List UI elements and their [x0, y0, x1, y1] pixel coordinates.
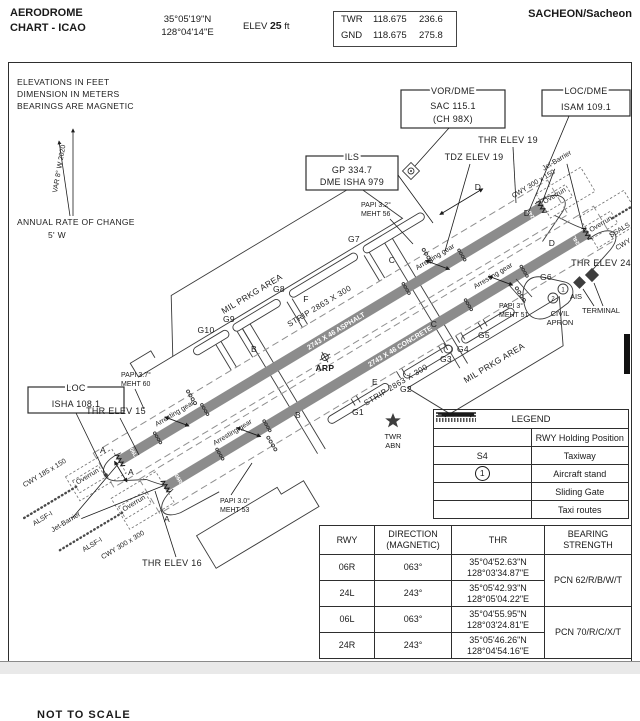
variation-label: VAR 8° W 2020 — [51, 144, 67, 193]
taxiway-g2-label: G2 — [400, 384, 412, 394]
airport-lon: 128°04'14"E — [140, 26, 235, 39]
rwy-24r: 24R — [320, 633, 375, 659]
legend-holding-label: RWY Holding Position — [531, 429, 629, 447]
jet-barrier-label-west: Jet-Barrier — [50, 511, 82, 534]
legend-gate-label: Sliding Gate — [531, 483, 629, 501]
gnd-freq-2: 275.8 — [419, 28, 443, 44]
rwy-06r: 06R — [320, 555, 375, 581]
aerodrome-chart-page: { "header": { "title1": "AERODROME", "ti… — [0, 0, 640, 673]
chart-title-line1: AERODROME — [10, 6, 86, 21]
ils-gp: GP 334.7 — [332, 165, 372, 175]
frequency-box: TWR 118.675 236.6 GND 118.675 275.8 — [333, 11, 457, 47]
civil-apron-label-1: CIVIL — [551, 309, 570, 318]
rwy-holding-position-icon — [434, 429, 532, 447]
elev-label: ELEV — [243, 21, 267, 32]
chart-title-line2: CHART - ICAO — [10, 21, 86, 36]
taxiway-d-label-2: D — [524, 208, 530, 218]
annual-rate-label: ANNUAL RATE OF CHANGE — [17, 217, 135, 227]
legend-row-taxiway: S4 Taxiway — [434, 447, 629, 465]
scrollbar-thumb[interactable] — [624, 334, 630, 374]
col-thr: THR — [452, 526, 545, 555]
thr-24r: 35°05'46.26"N128°04'54.16"E — [452, 633, 545, 659]
thr-elev-19-label: THR ELEV 19 — [478, 135, 538, 145]
vor-dme-title: VOR/DME — [431, 86, 475, 96]
loc-dme-ident: ISAM 109.1 — [561, 102, 611, 112]
alsf-label-2: ALSF-I — [81, 537, 103, 554]
gnd-freq-1: 118.675 — [373, 28, 419, 44]
taxiway-g1-label: G1 — [352, 407, 364, 417]
taxiway-f-label: F — [303, 294, 309, 304]
taxiway-g8-label: G8 — [273, 284, 285, 294]
alsf-label-1: ALSF-I — [32, 510, 54, 527]
twr-freq-2: 236.6 — [419, 12, 443, 28]
taxiway-a-label-1: A — [100, 445, 106, 455]
tdz-elev-19-label: TDZ ELEV 19 — [445, 152, 504, 162]
chart-title: AERODROME CHART - ICAO — [10, 6, 86, 36]
sliding-gate-icon — [434, 483, 532, 501]
ssals-label: SSALS — [608, 222, 631, 240]
twr-frequency-row: TWR 118.675 236.6 — [334, 12, 456, 28]
papi-30-meht: MEHT 53 — [220, 507, 250, 514]
cwy-185x150-label: CWY 185 x 150 — [22, 458, 68, 489]
papi-37-label: PAPI 3.7° — [121, 371, 151, 379]
terminal-building-icon — [573, 276, 586, 289]
papi-32-label: PAPI 3.2° — [361, 201, 391, 209]
legend-taxiway-label: Taxiway — [531, 447, 629, 465]
papi-37-meht: MEHT 60 — [121, 381, 151, 388]
col-rwy: RWY — [320, 526, 375, 555]
rwy-table-header: RWY DIRECTION(MAGNETIC) THR BEARINGSTREN… — [320, 526, 632, 555]
pcn-06l-24r: PCN 70/R/C/X/T — [545, 607, 632, 659]
southwest-apron — [197, 474, 319, 568]
airport-elevation: ELEV 25 ft — [243, 20, 290, 32]
not-to-scale-note: NOT TO SCALE — [37, 709, 131, 721]
vor-dme-symbol — [403, 163, 420, 180]
terminal-label: TERMINAL — [582, 306, 620, 315]
aircraft-stand-1: 1 — [561, 288, 565, 294]
airport-lat: 35°05'19"N — [140, 13, 235, 26]
taxiway-c-label-2: C — [431, 319, 437, 329]
mil-prkg-south-label: MIL PRKG AREA — [462, 341, 527, 385]
taxi-routes-icon — [434, 501, 532, 519]
taxiway-d-label-1: D — [475, 182, 481, 192]
civil-apron-label-2: APRON — [547, 318, 574, 327]
thr-06l: 35°04'55.95"N128°03'24.81"E — [452, 607, 545, 633]
rwy-06l: 06L — [320, 607, 375, 633]
arp-marker: ARP — [308, 349, 340, 382]
note-bearings: BEARINGS ARE MAGNETIC — [17, 101, 134, 111]
twr-label: TWR — [341, 12, 373, 28]
abn-label: ABN — [385, 441, 400, 450]
rwy-row-06r: 06R 063° 35°04'52.63"N128°03'34.87"E PCN… — [320, 555, 632, 581]
cwy-300x300-label-west: CWY 300 x 300 — [100, 530, 146, 561]
thr-elev-24-label: THR ELEV 24 — [571, 258, 631, 268]
taxiway-g10-label: G10 — [198, 325, 215, 335]
papi-3-meht: MEHT 51 — [499, 312, 529, 319]
airport-name: SACHEON/Sacheon — [528, 8, 632, 20]
runway-data-table: RWY DIRECTION(MAGNETIC) THR BEARINGSTREN… — [319, 525, 632, 659]
vor-dme-freq: SAC 115.1 — [430, 101, 476, 111]
elev-unit: ft — [284, 21, 289, 32]
taxiway-d-label-3: D — [549, 238, 555, 248]
overrun-label-3: Overrun — [542, 187, 567, 206]
gnd-frequency-row: GND 118.675 275.8 — [334, 28, 456, 44]
elev-value: 25 — [270, 20, 282, 32]
col-direction: DIRECTION(MAGNETIC) — [375, 526, 452, 555]
vor-dme-channel: (CH 98X) — [433, 114, 473, 124]
thr-24l: 35°05'42.93"N128°05'04.22"E — [452, 581, 545, 607]
taxiway-g9-label: G9 — [223, 314, 235, 324]
rwy-24l: 24L — [320, 581, 375, 607]
chart-notes: ELEVATIONS IN FEET DIMENSION IN METERS B… — [17, 77, 134, 111]
taxiway-a-label-3: A — [164, 514, 170, 524]
arp-label: ARP — [315, 363, 334, 373]
thr-elev-16-label: THR ELEV 16 — [142, 558, 202, 568]
taxiway-g3-label: G3 — [440, 354, 452, 364]
taxiway-c-label-1: C — [389, 255, 395, 265]
ais-label: AIS — [570, 292, 582, 301]
papi-30-label: PAPI 3.0° — [220, 497, 250, 505]
col-bearing: BEARINGSTRENGTH — [545, 526, 632, 555]
tower-beacon: TWR ABN — [384, 413, 402, 450]
twr-freq-1: 118.675 — [373, 12, 419, 28]
thr-elev-15-label: THR ELEV 15 — [86, 406, 146, 416]
taxiway-e-label: E — [372, 377, 378, 387]
legend-row-holding: RWY Holding Position — [434, 429, 629, 447]
overrun-label-1: Overrun — [75, 467, 100, 486]
gnd-label: GND — [341, 28, 373, 44]
legend-row-gate: Sliding Gate — [434, 483, 629, 501]
legend-table: LEGEND RWY Holding Position S4 Taxiway 1… — [433, 409, 629, 519]
page-bottom-strip — [0, 661, 640, 674]
taxiway-a-label-2: A — [128, 467, 134, 477]
ais-building-icon — [585, 268, 599, 282]
taxiway-g7-label: G7 — [348, 234, 360, 244]
papi-3-label: PAPI 3° — [499, 302, 523, 310]
loc-title: LOC — [66, 383, 86, 393]
taxiway-b-label-2: B — [295, 410, 301, 420]
dir-06r: 063° — [375, 555, 452, 581]
taxiway-g5-label: G5 — [478, 330, 490, 340]
note-dimensions: DIMENSION IN METERS — [17, 89, 120, 99]
note-elevations: ELEVATIONS IN FEET — [17, 77, 109, 87]
aircraft-stand-icon: 1 — [434, 465, 532, 483]
north-arrow: VAR 8° W 2020 — [51, 129, 73, 216]
rwy-row-06l: 06L 063° 35°04'55.95"N128°03'24.81"E PCN… — [320, 607, 632, 633]
star-icon — [385, 413, 401, 427]
thr-06r: 35°04'52.63"N128°03'34.87"E — [452, 555, 545, 581]
pcn-06r-24l: PCN 62/R/B/W/T — [545, 555, 632, 607]
dir-06l: 063° — [375, 607, 452, 633]
taxiway-symbol: S4 — [434, 447, 532, 465]
loc-dme-title: LOC/DME — [564, 86, 607, 96]
runway-north-dimension-label: 2743 X 46 ASPHALT — [306, 311, 367, 351]
legend-stand-label: Aircraft stand — [531, 465, 629, 483]
taxiway-b-label-1: B — [251, 344, 257, 354]
loc-box: LOC ISHA 108.1 — [28, 383, 124, 477]
papi-32-meht: MEHT 56 — [361, 211, 391, 218]
taxiway-g4-label: G4 — [457, 344, 469, 354]
dir-24l: 243° — [375, 581, 452, 607]
ils-dme: DME ISHA 979 — [320, 177, 384, 187]
chart-frame: MIL PRKG AREA MIL PRKG AREA 2743 X — [8, 62, 632, 662]
twr-label: TWR — [384, 432, 402, 441]
legend-routes-label: Taxi routes — [531, 501, 629, 519]
loc-dme-box: LOC/DME ISAM 109.1 — [529, 86, 630, 211]
legend-row-routes: Taxi routes — [434, 501, 629, 519]
airport-coordinates: 35°05'19"N 128°04'14"E — [140, 13, 235, 39]
dir-24r: 243° — [375, 633, 452, 659]
legend-row-stand: 1 Aircraft stand — [434, 465, 629, 483]
annual-rate-value: 5' W — [48, 230, 66, 240]
ils-title: ILS — [345, 152, 359, 162]
